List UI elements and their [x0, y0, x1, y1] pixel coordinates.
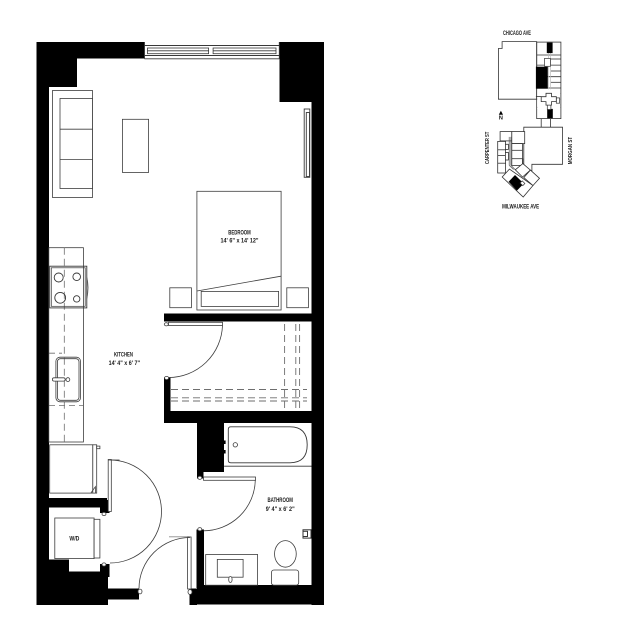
svg-text:MILWAUKEE AVE: MILWAUKEE AVE [502, 204, 539, 210]
svg-text:MORGAN ST: MORGAN ST [568, 137, 574, 165]
svg-text:CARPENTER ST: CARPENTER ST [485, 131, 491, 164]
svg-text:W/D: W/D [69, 537, 80, 543]
svg-text:KITCHEN: KITCHEN [114, 352, 133, 359]
svg-text:14' 6" x 14' 12": 14' 6" x 14' 12" [221, 239, 259, 245]
svg-text:N: N [499, 116, 503, 122]
svg-text:CHICAGO AVE: CHICAGO AVE [503, 31, 531, 37]
svg-text:14' 4" x 6' 7": 14' 4" x 6' 7" [109, 361, 141, 367]
svg-text:BATHROOM: BATHROOM [267, 497, 293, 504]
svg-text:9' 4" x 6' 2": 9' 4" x 6' 2" [266, 507, 295, 513]
svg-text:BEDROOM: BEDROOM [228, 229, 251, 236]
